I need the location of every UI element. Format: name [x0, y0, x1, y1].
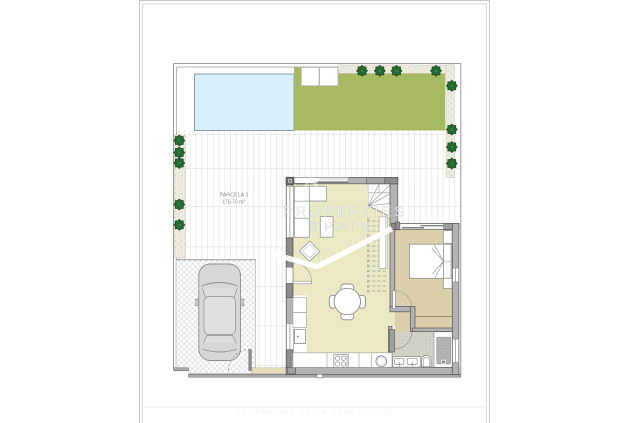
- svg-text:PROPERTIES SPAIN REAL ESTATE: PROPERTIES SPAIN REAL ESTATE: [236, 409, 394, 416]
- svg-text:PARCELA 1: PARCELA 1: [220, 193, 249, 199]
- svg-text:175.70 m²: 175.70 m²: [222, 200, 246, 206]
- svg-text:SPAIN: SPAIN: [310, 219, 375, 234]
